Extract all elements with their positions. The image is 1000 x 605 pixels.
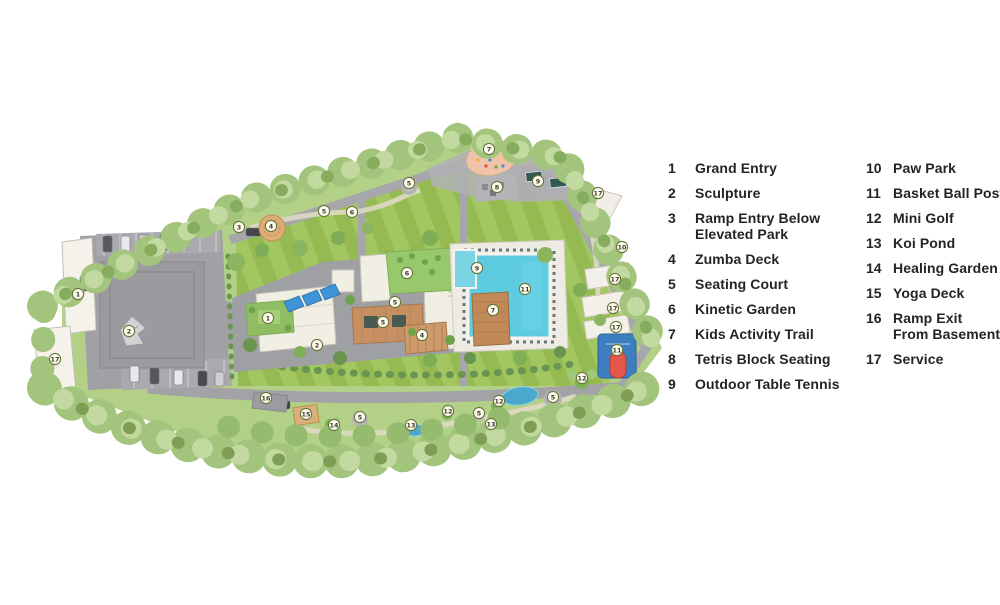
map-marker-12: 12 [493,395,504,406]
legend-item-11: 11Basket Ball Post [866,185,1000,201]
svg-text:5: 5 [358,413,362,421]
map-marker-17: 17 [49,353,60,364]
map-marker-9: 9 [532,175,543,186]
svg-text:17: 17 [594,189,603,197]
svg-text:2: 2 [315,341,319,349]
map-marker-9: 9 [471,262,482,273]
legend-item-number: 7 [668,326,686,342]
map-marker-8: 8 [491,181,502,192]
legend-item-14: 14Healing Garden [866,260,1000,276]
legend-item-label: Basket Ball Post [893,185,1000,201]
legend-item-number: 4 [668,251,686,267]
map-marker-6: 6 [346,206,357,217]
svg-text:14: 14 [330,421,339,429]
map-marker-13: 13 [485,418,496,429]
map-marker-11: 11 [519,283,530,294]
svg-text:15: 15 [302,410,311,418]
svg-text:1: 1 [76,290,80,298]
svg-text:12: 12 [444,407,453,415]
legend-item-label: Healing Garden [893,260,998,276]
map-marker-12: 12 [442,405,453,416]
legend-item-number: 16 [866,310,884,342]
map-marker-17: 17 [610,321,621,332]
svg-text:6: 6 [405,269,410,277]
legend-item-6: 6Kinetic Garden [668,301,840,317]
svg-text:11: 11 [613,346,622,354]
legend-item-number: 14 [866,260,884,276]
map-marker-2: 2 [123,325,134,336]
legend-item-label: Seating Court [695,276,788,292]
legend-item-number: 11 [866,185,884,201]
map-marker-5: 5 [547,391,558,402]
map-marker-15: 15 [300,408,311,419]
legend-item-label: Tetris Block Seating [695,351,831,367]
svg-text:17: 17 [611,275,620,283]
svg-text:6: 6 [350,208,355,216]
svg-text:5: 5 [407,179,411,187]
map-marker-5: 5 [403,177,414,188]
svg-text:1: 1 [266,314,270,322]
svg-text:13: 13 [487,420,496,428]
svg-text:5: 5 [551,393,555,401]
legend-item-label: Ramp Exit From Basement [893,310,1000,342]
map-marker-3: 3 [233,221,244,232]
map-marker-7: 7 [487,304,498,315]
legend-item-label: Mini Golf [893,210,954,226]
legend-item-label: Outdoor Table Tennis [695,376,840,392]
map-marker-17: 17 [609,273,620,284]
svg-text:10: 10 [618,243,627,251]
legend-item-label: Service [893,351,944,367]
map-marker-17: 17 [607,302,618,313]
legend-item-9: 9Outdoor Table Tennis [668,376,840,392]
legend-item-label: Kinetic Garden [695,301,796,317]
legend-item-label: Sculpture [695,185,760,201]
legend-item-number: 12 [866,210,884,226]
svg-text:13: 13 [407,421,416,429]
svg-text:17: 17 [51,355,60,363]
site-plan-map: 1217345657891710171717111251251312135141… [0,0,680,600]
map-marker-12: 12 [576,372,587,383]
legend-item-10: 10Paw Park [866,160,1000,176]
legend-item-label: Zumba Deck [695,251,779,267]
legend-item-12: 12Mini Golf [866,210,1000,226]
svg-text:16: 16 [262,394,271,402]
map-marker-5: 5 [389,296,400,307]
svg-text:4: 4 [269,222,274,230]
map-marker-6: 6 [401,267,412,278]
svg-text:17: 17 [609,304,618,312]
svg-text:8: 8 [495,183,500,191]
legend-item-label: Grand Entry [695,160,777,176]
legend-item-5: 5Seating Court [668,276,840,292]
map-marker-5: 5 [354,411,365,422]
legend-item-1: 1Grand Entry [668,160,840,176]
svg-text:9: 9 [536,177,541,185]
legend: 1Grand Entry2Sculpture3Ramp Entry Below … [668,160,1000,401]
legend-item-2: 2Sculpture [668,185,840,201]
map-marker-5: 5 [377,316,388,327]
svg-text:12: 12 [578,374,587,382]
map-marker-2: 2 [311,339,322,350]
legend-item-number: 6 [668,301,686,317]
map-marker-11: 11 [611,344,622,355]
legend-item-number: 5 [668,276,686,292]
legend-item-label: Ramp Entry Below Elevated Park [695,210,820,242]
map-marker-13: 13 [405,419,416,430]
legend-item-label: Kids Activity Trail [695,326,814,342]
legend-item-number: 1 [668,160,686,176]
legend-column-1: 1Grand Entry2Sculpture3Ramp Entry Below … [668,160,840,401]
svg-text:9: 9 [475,264,480,272]
map-marker-16: 16 [260,392,271,403]
legend-item-number: 15 [866,285,884,301]
legend-item-number: 2 [668,185,686,201]
legend-item-17: 17Service [866,351,1000,367]
legend-item-4: 4Zumba Deck [668,251,840,267]
svg-text:5: 5 [381,318,385,326]
map-marker-1: 1 [72,288,83,299]
svg-text:3: 3 [237,223,241,231]
svg-text:4: 4 [420,331,425,339]
map-marker-5: 5 [473,407,484,418]
legend-item-number: 8 [668,351,686,367]
legend-item-number: 3 [668,210,686,242]
legend-item-number: 9 [668,376,686,392]
legend-item-number: 17 [866,351,884,367]
map-marker-14: 14 [328,419,339,430]
map-marker-10: 10 [616,241,627,252]
legend-item-8: 8Tetris Block Seating [668,351,840,367]
legend-item-16: 16Ramp Exit From Basement [866,310,1000,342]
map-marker-5: 5 [318,205,329,216]
legend-item-number: 13 [866,235,884,251]
pool-wood-deck [472,292,510,346]
legend-column-2: 10Paw Park11Basket Ball Post12Mini Golf1… [866,160,1000,401]
svg-text:12: 12 [495,397,504,405]
map-marker-1: 1 [262,312,273,323]
svg-text:17: 17 [612,323,621,331]
svg-text:5: 5 [393,298,397,306]
map-marker-7: 7 [483,143,494,154]
legend-item-number: 10 [866,160,884,176]
map-marker-17: 17 [592,187,603,198]
svg-text:7: 7 [487,145,491,153]
svg-text:11: 11 [521,285,530,293]
map-marker-4: 4 [416,329,427,340]
legend-item-7: 7Kids Activity Trail [668,326,840,342]
legend-item-13: 13Koi Pond [866,235,1000,251]
legend-item-label: Koi Pond [893,235,955,251]
svg-text:5: 5 [477,409,481,417]
legend-item-15: 15Yoga Deck [866,285,1000,301]
legend-item-label: Yoga Deck [893,285,964,301]
svg-text:5: 5 [322,207,326,215]
map-marker-4: 4 [265,220,276,231]
svg-text:2: 2 [127,327,131,335]
legend-item-label: Paw Park [893,160,956,176]
legend-item-3: 3Ramp Entry Below Elevated Park [668,210,840,242]
kinetic-garden [386,248,456,294]
svg-text:7: 7 [491,306,495,314]
